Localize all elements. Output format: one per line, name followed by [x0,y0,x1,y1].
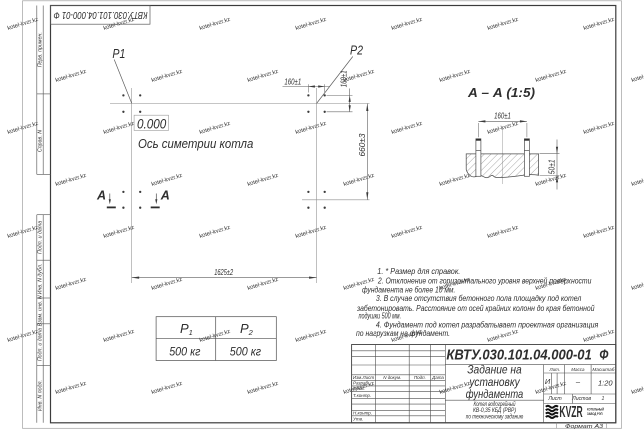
svg-text:Лист: Лист [547,396,562,402]
svg-text:Масштаб: Масштаб [592,367,614,372]
svg-text:1. * Размер для справок.: 1. * Размер для справок. [377,267,460,276]
svg-text:А: А [160,189,170,203]
svg-text:1625±2: 1625±2 [214,267,233,277]
svg-text:Инв. N подл.: Инв. N подл. [38,380,44,411]
svg-text:А – А (1:5): А – А (1:5) [467,85,535,100]
svg-text:Н.контр.: Н.контр. [353,411,372,416]
svg-text:Подп. и дата: Подп. и дата [38,221,44,254]
svg-text:Изм.Лист: Изм.Лист [353,375,374,380]
svg-text:N докум.: N докум. [383,375,401,380]
svg-text:Справ. N: Справ. N [38,130,44,152]
svg-text:Подп.: Подп. [414,375,426,380]
svg-text:фундамента: фундамента [466,387,524,401]
svg-text:P2: P2 [350,44,363,58]
svg-text:КВТУ.030.101.04.000-01: КВТУ.030.101.04.000-01 [446,347,591,364]
svg-text:Пров.: Пров. [353,386,365,391]
svg-text:500 кг: 500 кг [230,344,261,358]
svg-text:Ось симетрии котла: Ось симетрии котла [138,136,253,151]
svg-text:Разраб.: Разраб. [353,381,369,386]
svg-text:Ф: Ф [599,347,608,364]
svg-text:Утв.: Утв. [353,416,363,421]
svg-text:подушки 500 мм.: подушки 500 мм. [359,311,402,320]
svg-text:И: И [545,377,551,386]
svg-text:1:20: 1:20 [598,378,613,387]
svg-text:Масса: Масса [571,367,585,372]
svg-text:0.000: 0.000 [137,117,167,132]
svg-text:по нагрузкам на фундамент.: по нагрузкам на фундамент. [356,329,450,338]
svg-text:3. В случае отсутствия бетонно: 3. В случае отсутствия бетонного пола пл… [376,294,582,303]
svg-text:160±1: 160±1 [284,77,301,86]
svg-text:Перв. примен.: Перв. примен. [38,32,44,67]
svg-text:Листов: Листов [571,396,591,402]
svg-text:Инв. N дубл.: Инв. N дубл. [38,264,44,295]
svg-text:Т.контр.: Т.контр. [353,393,371,398]
svg-text:Дата: Дата [431,375,444,380]
svg-text:Формат А3: Формат А3 [565,424,604,430]
svg-text:Подп. и дата: Подп. и дата [38,328,44,361]
svg-text:1: 1 [601,396,604,402]
svg-text:Лит.: Лит. [549,367,561,372]
svg-text:160±1: 160±1 [339,70,348,87]
svg-text:160±1: 160±1 [494,112,511,121]
svg-text:500 кг: 500 кг [169,344,200,358]
svg-text:2. Отклонение от горизонтально: 2. Отклонение от горизонтального уровня … [377,276,592,285]
svg-text:P1: P1 [112,47,125,61]
svg-text:по техническому заданию: по техническому заданию [466,414,524,421]
svg-text:50±1: 50±1 [547,159,556,174]
svg-text:ЗАВОД РЭП: ЗАВОД РЭП [587,411,603,416]
svg-text:А: А [96,189,106,203]
svg-text:KVZR: KVZR [559,404,583,421]
svg-text:–: – [575,377,581,386]
svg-text:КВТУ.030.101.04.000-01 Ф: КВТУ.030.101.04.000-01 Ф [54,9,148,20]
svg-text:Взам. инв. N: Взам. инв. N [38,295,44,326]
svg-text:660±3: 660±3 [357,133,367,156]
